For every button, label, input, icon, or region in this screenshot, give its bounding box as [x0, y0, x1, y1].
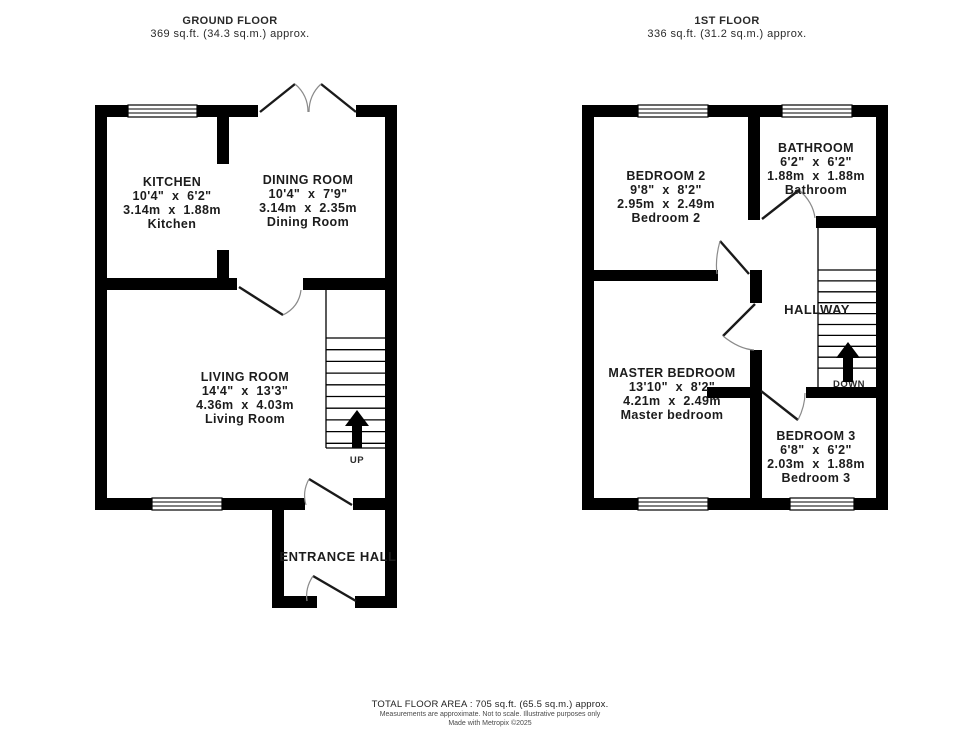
living-room-window	[152, 498, 222, 510]
ground-floor-stairs	[326, 290, 385, 448]
hallway-label: HALLWAY	[784, 302, 850, 317]
total-floor-area: TOTAL FLOOR AREA : 705 sq.ft. (65.5 sq.m…	[372, 699, 609, 710]
ground-floor-title-text: GROUND FLOOR	[150, 15, 309, 28]
bedroom2-door	[716, 241, 749, 274]
living-room-door	[239, 287, 301, 315]
bathroom-window	[782, 105, 852, 117]
room-label-kitchen: KITCHEN 10'4" x 6'2" 3.14m x 1.88m Kitch…	[123, 175, 221, 231]
room-label-bedroom3: BEDROOM 3 6'8" x 6'2" 2.03m x 1.88m Bedr…	[767, 429, 865, 485]
master-bedroom-window	[638, 498, 708, 510]
hall-to-living-door	[305, 479, 352, 505]
first-floor-area: 336 sq.ft. (31.2 sq.m.) approx.	[647, 28, 806, 41]
ground-floor-plan	[95, 84, 397, 608]
kitchen-window	[128, 105, 197, 117]
floorplan-canvas	[0, 0, 980, 751]
first-floor-title: 1ST FLOOR 336 sq.ft. (31.2 sq.m.) approx…	[647, 15, 806, 41]
stairs-up-arrow-icon	[345, 410, 369, 448]
french-doors	[260, 84, 356, 112]
bedroom2-window	[638, 105, 708, 117]
ground-floor-area: 369 sq.ft. (34.3 sq.m.) approx.	[150, 28, 309, 41]
room-label-master: MASTER BEDROOM 13'10" x 8'2" 4.21m x 2.4…	[608, 366, 735, 422]
stairs-up-label: UP	[350, 455, 364, 466]
stairs-down-arrow-icon	[836, 342, 860, 382]
first-floor-title-text: 1ST FLOOR	[647, 15, 806, 28]
room-label-bathroom: BATHROOM 6'2" x 6'2" 1.88m x 1.88m Bathr…	[767, 141, 865, 197]
floorplan-page: DOWN	[0, 0, 980, 751]
credit-text: Made with Metropix ©2025	[448, 720, 531, 727]
bedroom3-door	[761, 391, 805, 420]
ground-floor-title: GROUND FLOOR 369 sq.ft. (34.3 sq.m.) app…	[150, 15, 309, 41]
disclaimer-text: Measurements are approximate. Not to sca…	[380, 711, 601, 718]
master-bedroom-door	[723, 304, 755, 350]
ground-floor-windows	[128, 105, 222, 510]
room-label-living: LIVING ROOM 14'4" x 13'3" 4.36m x 4.03m …	[196, 370, 294, 426]
entrance-hall-label: ENTRANCE HALL	[280, 549, 397, 564]
ground-floor-doors	[239, 84, 356, 601]
room-label-bedroom2: BEDROOM 2 9'8" x 8'2" 2.95m x 2.49m Bedr…	[617, 169, 715, 225]
bedroom3-window	[790, 498, 854, 510]
room-label-dining: DINING ROOM 10'4" x 7'9" 3.14m x 2.35m D…	[259, 173, 357, 229]
